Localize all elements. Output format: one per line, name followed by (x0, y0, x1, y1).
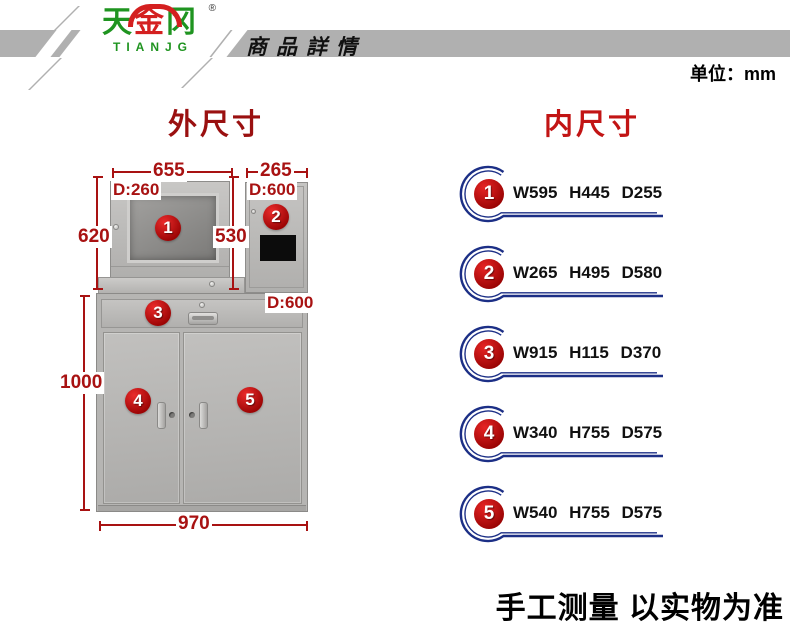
side-compartment-cutout (260, 235, 296, 261)
unit-label: 单位：mm (690, 60, 776, 86)
dimension-line-1000 (83, 295, 85, 511)
left-door-lock (169, 412, 175, 418)
spec-text: W915 H115 D370 (513, 343, 661, 363)
spec-number-badge: 1 (474, 179, 504, 209)
cabinet-desk-ledge (98, 277, 245, 294)
side-compartment-knob (251, 209, 256, 214)
dimension-label-970: 970 (176, 513, 212, 535)
cabinet-left-door (103, 332, 180, 504)
diagram-badge-3: 3 (145, 300, 171, 326)
spec-number-badge: 5 (474, 499, 504, 529)
spec-item: 1 W595 H445 D255 (456, 164, 686, 228)
right-door-lock (189, 412, 195, 418)
spec-number-badge: 4 (474, 419, 504, 449)
spec-item: 5 W540 H755 D575 (456, 484, 686, 548)
dimension-label-265: 265 (258, 160, 294, 182)
desk-knob (209, 281, 215, 287)
brand-logo-cn: 天金冈 ® (92, 8, 208, 38)
right-door-handle (199, 402, 208, 429)
header-deco-line (181, 58, 213, 88)
measurement-note: 手工测量 以实物为准 (496, 583, 784, 627)
dimension-label-1000: 1000 (58, 372, 104, 394)
spec-text: W265 H495 D580 (513, 263, 662, 283)
page-title: 商品詳情 (246, 31, 366, 61)
housing-knob (113, 224, 119, 230)
left-door-handle (157, 402, 166, 429)
dimension-label-620: 620 (76, 226, 112, 248)
dimension-label-d600-top: D:600 (247, 180, 297, 200)
inner-spec-list: 1 W595 H445 D255 2 W265 H495 D580 3 W915… (456, 164, 686, 564)
diagram-badge-5: 5 (237, 387, 263, 413)
dimension-label-d260: D:260 (111, 180, 161, 200)
diagram-badge-1: 1 (155, 215, 181, 241)
brand-logo-latin: TIANJG (92, 41, 208, 53)
brand-logo: 天金冈 ® TIANJG (92, 8, 208, 53)
diagram-badge-2: 2 (263, 204, 289, 230)
inner-dimensions-title: 内尺寸 (544, 101, 640, 143)
spec-item: 3 W915 H115 D370 (456, 324, 686, 388)
dimension-label-530: 530 (213, 226, 249, 248)
diagram-badge-4: 4 (125, 388, 151, 414)
dimension-label-d600-lower: D:600 (265, 293, 315, 313)
spec-text: W540 H755 D575 (513, 503, 662, 523)
dimension-label-655: 655 (151, 160, 187, 182)
drawer-handle (188, 312, 218, 325)
registered-mark: ® (209, 4, 218, 14)
cabinet-base (98, 505, 306, 511)
outer-dimensions-title: 外尺寸 (168, 101, 264, 143)
product-detail-page: 天金冈 ® TIANJG 商品詳情 单位：mm 外尺寸 内尺寸 655 265 … (0, 0, 790, 636)
spec-number-badge: 2 (474, 259, 504, 289)
header-deco-line (28, 58, 62, 90)
spec-text: W340 H755 D575 (513, 423, 662, 443)
spec-item: 2 W265 H495 D580 (456, 244, 686, 308)
spec-text: W595 H445 D255 (513, 183, 662, 203)
cabinet-seam (111, 266, 229, 267)
spec-item: 4 W340 H755 D575 (456, 404, 686, 468)
drawer-knob (199, 302, 205, 308)
spec-number-badge: 3 (474, 339, 504, 369)
